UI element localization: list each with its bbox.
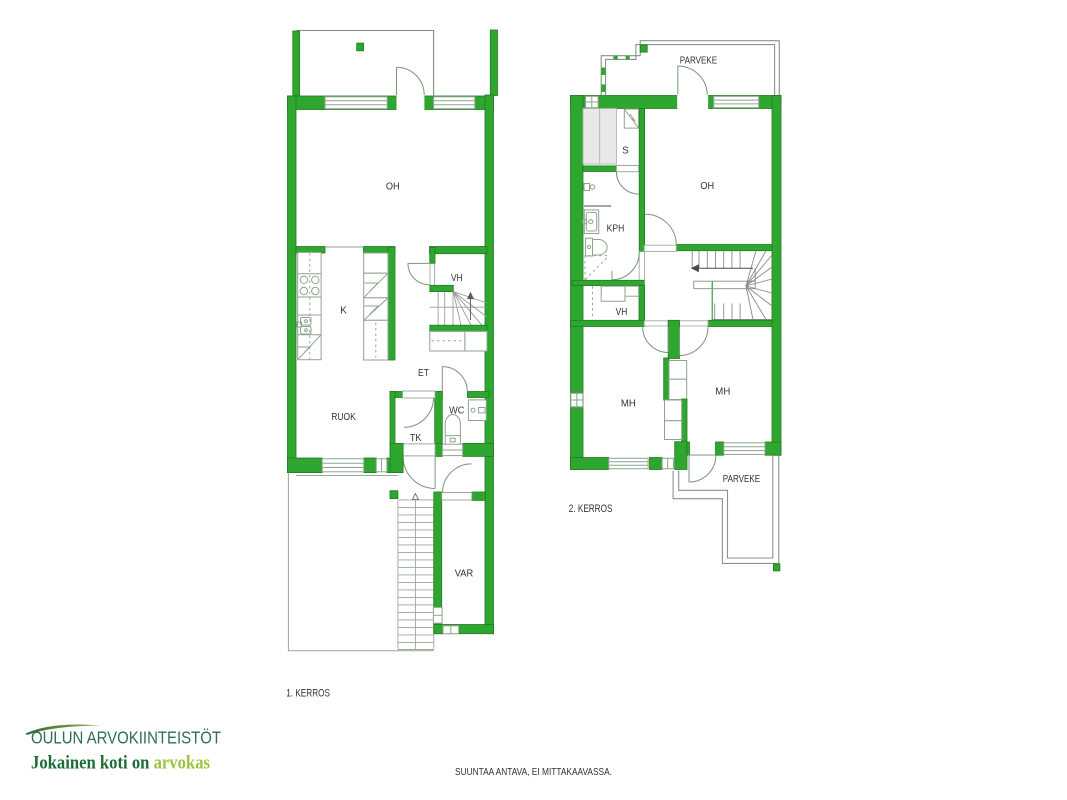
svg-text:OH: OH: [700, 181, 714, 192]
svg-text:OH: OH: [386, 182, 400, 193]
svg-text:VH: VH: [616, 307, 628, 318]
svg-text:TK: TK: [410, 433, 422, 444]
svg-text:S: S: [622, 146, 629, 157]
svg-text:VAR: VAR: [455, 569, 473, 580]
svg-text:2. KERROS: 2. KERROS: [569, 503, 613, 515]
svg-text:OULUN ARVOKIINTEISTÖT: OULUN ARVOKIINTEISTÖT: [31, 728, 221, 748]
svg-text:RUOK: RUOK: [331, 412, 356, 423]
svg-text:KPH: KPH: [607, 224, 625, 235]
svg-text:WC: WC: [449, 406, 464, 417]
svg-text:PARVEKE: PARVEKE: [723, 474, 761, 485]
svg-text:MH: MH: [715, 387, 730, 398]
svg-text:K: K: [340, 306, 347, 317]
svg-text:ET: ET: [418, 368, 429, 379]
svg-text:SUUNTAA ANTAVA, EI MITTAKAAVAS: SUUNTAA ANTAVA, EI MITTAKAAVASSA.: [455, 767, 612, 778]
svg-text:PARVEKE: PARVEKE: [680, 56, 718, 67]
svg-text:Jokainen koti on arvokas: Jokainen koti on arvokas: [31, 754, 210, 774]
svg-text:1. KERROS: 1. KERROS: [286, 688, 330, 700]
svg-text:MH: MH: [621, 398, 636, 409]
svg-text:VH: VH: [451, 273, 463, 284]
